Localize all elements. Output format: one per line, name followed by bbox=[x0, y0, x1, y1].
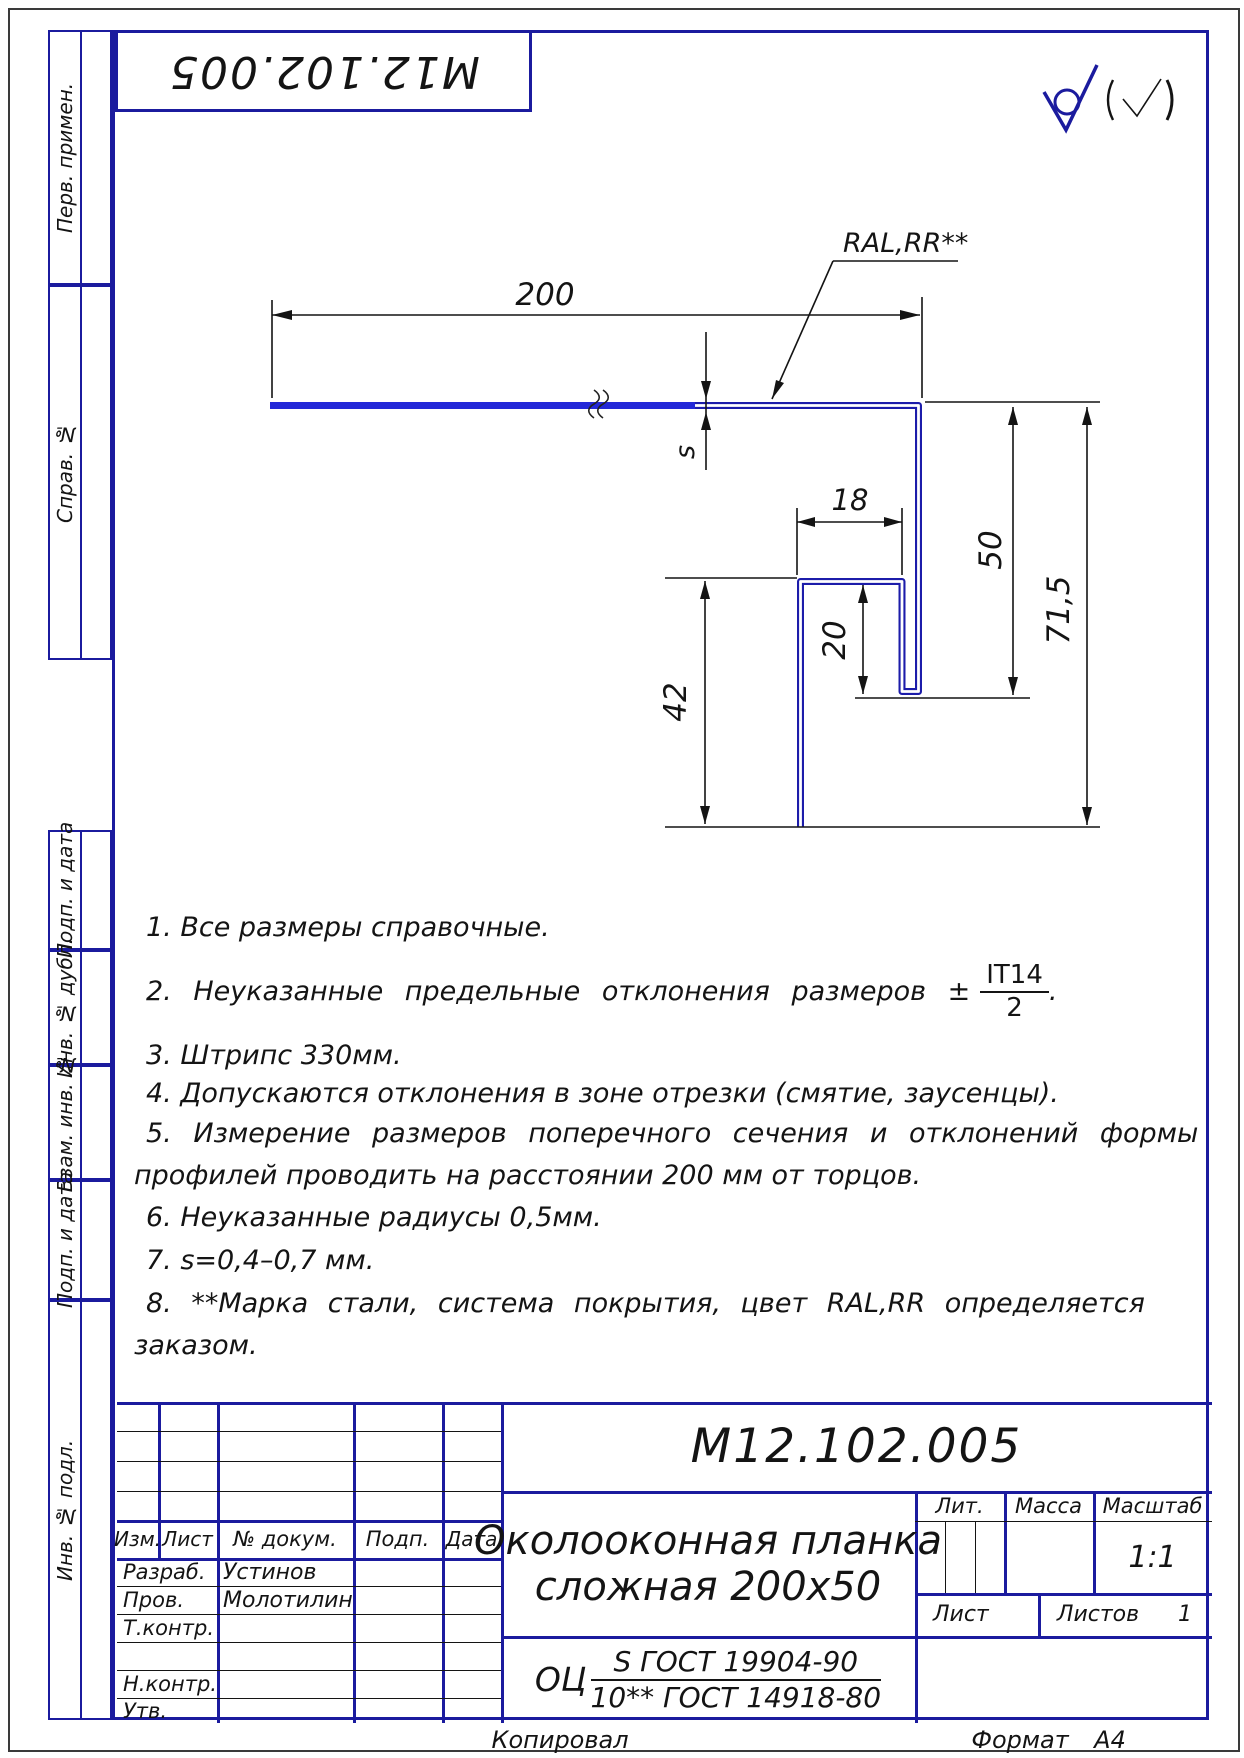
leader-label: RAL,RR** bbox=[843, 228, 968, 259]
note-2-text: 2. Неуказанные предельные отклонения раз… bbox=[146, 976, 970, 1007]
staff-name-razrab: Устинов bbox=[217, 1558, 353, 1586]
part-name-line2: сложная 200х50 bbox=[535, 1564, 881, 1610]
note-7: 7. s=0,4–0,7 мм. bbox=[146, 1245, 374, 1276]
dim-71-5: 71,5 bbox=[1041, 575, 1077, 644]
material-bottom: 10** ГОСТ 14918-80 bbox=[591, 1681, 882, 1714]
dimension-arrows bbox=[272, 310, 1092, 825]
mass-label: Масса bbox=[1004, 1491, 1093, 1521]
staff-role-nkontr: Н.контр. bbox=[117, 1670, 217, 1698]
rev-col-list: Лист bbox=[158, 1520, 217, 1558]
margin-box-vzam-inv: Взам. инв. № bbox=[48, 1065, 112, 1180]
staff-name-prov: Молотилин bbox=[217, 1586, 353, 1614]
staff-role-tkontr: Т.контр. bbox=[117, 1614, 217, 1642]
leader-line bbox=[772, 261, 833, 399]
margin-label: Инв. № дубл. bbox=[50, 952, 80, 1063]
title-designation: М12.102.005 bbox=[501, 1402, 1212, 1491]
part-name: Околооконная планка сложная 200х50 bbox=[501, 1491, 915, 1636]
staff-role-prov: Пров. bbox=[117, 1586, 217, 1614]
note-8-line1: 8. **Марка стали, система покрытия, цвет… bbox=[146, 1288, 1145, 1319]
staff-role-utv: Утв. bbox=[117, 1698, 217, 1723]
material-fraction: S ГОСТ 19904-90 10** ГОСТ 14918-80 bbox=[591, 1645, 882, 1714]
note-2-period: . bbox=[1049, 976, 1058, 1007]
title-block: Изм. Лист № докум. Подп. Дата Разраб. Ус… bbox=[117, 1402, 1212, 1723]
profile-outline bbox=[270, 390, 919, 827]
margin-box-divider bbox=[80, 1067, 82, 1178]
copied-label: Копировал bbox=[460, 1726, 660, 1754]
roughness-symbol-icon bbox=[1044, 65, 1172, 130]
margin-label: Взам. инв. № bbox=[50, 1067, 80, 1178]
format-value: А4 bbox=[1080, 1726, 1140, 1754]
margin-label: Подп. и дата bbox=[50, 1182, 80, 1298]
margin-box-divider bbox=[80, 952, 82, 1063]
material-prefix: ОЦ bbox=[535, 1660, 587, 1699]
material-top: S ГОСТ 19904-90 bbox=[591, 1645, 882, 1681]
rev-col-izm: Изм. bbox=[117, 1520, 158, 1558]
scale-label: Масштаб bbox=[1093, 1491, 1212, 1521]
margin-label: Инв. № подл. bbox=[50, 1302, 80, 1718]
dim-200: 200 bbox=[515, 277, 574, 313]
profile-drawing: 200 18 RAL,RR** s 42 20 50 71,5 bbox=[0, 0, 1244, 900]
fraction-denominator: 2 bbox=[980, 993, 1049, 1023]
margin-box-divider bbox=[80, 1302, 82, 1718]
note-5-line2: профилей проводить на расстоянии 200 мм … bbox=[134, 1160, 921, 1191]
note-5-line1: 5. Измерение размеров поперечного сечени… bbox=[146, 1118, 1198, 1149]
dim-42: 42 bbox=[658, 682, 694, 721]
note-1: 1. Все размеры справочные. bbox=[146, 912, 550, 943]
sheets-label: Листов bbox=[1038, 1593, 1158, 1636]
dim-20: 20 bbox=[817, 620, 853, 659]
dim-18: 18 bbox=[832, 483, 869, 517]
format-label: Формат bbox=[960, 1726, 1080, 1754]
sheets-value: 1 bbox=[1158, 1593, 1212, 1636]
leader-arrow bbox=[772, 380, 784, 399]
note-2-fraction: IT14 2 bbox=[980, 960, 1049, 1023]
margin-box-inv-podl: Инв. № подл. bbox=[48, 1300, 112, 1720]
rev-col-doc: № докум. bbox=[217, 1520, 353, 1558]
dim-50: 50 bbox=[973, 530, 1009, 569]
margin-box-inv-dubl: Инв. № дубл. bbox=[48, 950, 112, 1065]
drawing-sheet: М12.102.005 Перв. примен. Справ. № Подп.… bbox=[0, 0, 1244, 1758]
margin-box-divider bbox=[80, 1182, 82, 1298]
note-4: 4. Допускаются отклонения в зоне отрезки… bbox=[146, 1078, 1059, 1109]
fraction-numerator: IT14 bbox=[980, 960, 1049, 993]
lit-label: Лит. bbox=[915, 1491, 1004, 1521]
margin-box-podp-data-2: Подп. и дата bbox=[48, 1180, 112, 1300]
scale-value: 1:1 bbox=[1093, 1521, 1212, 1593]
note-6: 6. Неуказанные радиусы 0,5мм. bbox=[146, 1202, 602, 1233]
dim-s: s bbox=[670, 445, 701, 459]
note-8-line2: заказом. bbox=[134, 1330, 258, 1361]
part-name-line1: Околооконная планка bbox=[474, 1518, 942, 1564]
staff-role-empty bbox=[117, 1642, 217, 1670]
staff-role-razrab: Разраб. bbox=[117, 1558, 217, 1586]
note-2: 2. Неуказанные предельные отклонения раз… bbox=[146, 952, 1057, 1030]
sheet-label: Лист bbox=[915, 1593, 1038, 1636]
material-cell: ОЦ S ГОСТ 19904-90 10** ГОСТ 14918-80 bbox=[501, 1636, 915, 1723]
note-3: 3. Штрипс 330мм. bbox=[146, 1040, 402, 1071]
rev-col-podp: Подп. bbox=[353, 1520, 442, 1558]
